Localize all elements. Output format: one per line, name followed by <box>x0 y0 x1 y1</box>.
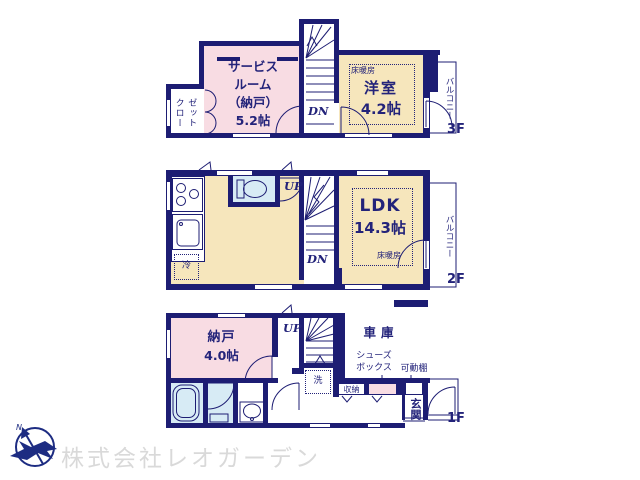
floorplan-page: クロー ゼット サービス ルーム （納戸） 5.2帖 床暖房 洋室 4.2帖 D… <box>0 0 640 480</box>
window-symbol <box>217 170 252 176</box>
wall <box>334 268 342 284</box>
western-room-name: 洋室 <box>339 78 423 99</box>
storage-room-name: 納戸 <box>171 329 272 347</box>
window-symbol <box>423 98 430 128</box>
sink-box <box>172 214 203 250</box>
wall-stub <box>292 368 304 374</box>
window-symbol <box>310 423 330 428</box>
window-symbol <box>218 313 245 318</box>
stairs-up-label-2f: UP <box>284 178 303 194</box>
floor2-label: 2F <box>447 271 465 289</box>
service-room-label: サービス ルーム （納戸） 5.2帖 <box>204 58 302 131</box>
floor3-label: 3F <box>447 121 465 139</box>
wall-stub <box>365 383 368 395</box>
wall <box>423 170 430 290</box>
room-toilet-2f <box>233 176 275 202</box>
wall <box>228 202 280 207</box>
closet-label-1f: 収納 <box>338 384 365 395</box>
wall <box>199 41 304 46</box>
entrance-label: 玄関 <box>405 395 423 423</box>
window-leaf-mark-1f <box>282 305 292 313</box>
shoebox-box <box>368 383 397 395</box>
company-name: 株式会社レオガーデン <box>61 443 321 475</box>
storage-room-size: 4.0帖 <box>171 347 272 365</box>
window-symbol <box>233 133 270 138</box>
window-symbol <box>345 284 382 290</box>
stairs-dn-label-3f: DN <box>308 103 328 119</box>
wall <box>233 383 238 423</box>
garage-wall-segment <box>394 300 428 307</box>
vanity-icon <box>240 402 264 422</box>
room-washroom-1f <box>208 383 233 423</box>
open-chevron-icons <box>342 396 382 402</box>
ldk-size: 14.3帖 <box>337 218 423 239</box>
washer-label: 洗 <box>305 375 331 388</box>
stairwell-2f <box>304 176 334 284</box>
window-symbol <box>166 182 171 210</box>
shoebox-label: シューズ ボックス <box>350 351 398 374</box>
window-symbol <box>368 423 380 428</box>
window-leaf-marks-2f <box>199 162 292 170</box>
window-symbol <box>255 284 292 290</box>
fridge-label: 冷 <box>174 260 199 273</box>
window-symbol <box>423 241 430 269</box>
heating-label-3f: 床暖房 <box>351 65 375 76</box>
closet-label-3f: クロー ゼット <box>172 90 204 136</box>
room-bath-1f <box>171 383 203 423</box>
wall <box>275 176 280 207</box>
window-symbol <box>357 170 388 176</box>
wall <box>166 313 345 318</box>
wall <box>166 284 430 290</box>
stove-box <box>172 178 203 212</box>
stairs-1f-icon <box>306 318 334 364</box>
floor1-label: 1F <box>447 410 465 428</box>
wall <box>166 378 278 383</box>
wall <box>263 383 268 423</box>
stairs-dn-label-2f: DN <box>307 251 327 267</box>
wall <box>203 383 208 423</box>
shelf-box <box>405 382 423 395</box>
wall <box>166 170 430 176</box>
window-symbol <box>166 100 171 126</box>
logo-north-letter: N <box>16 422 22 433</box>
wall <box>272 318 278 357</box>
window-symbol <box>345 133 392 138</box>
wall <box>166 84 204 89</box>
wall <box>337 378 430 383</box>
heating-label-2f: 床暖房 <box>377 250 401 261</box>
garage-label: 車庫 <box>358 324 404 342</box>
balcony-label-2f: バルコニー <box>432 200 454 272</box>
wall <box>423 380 428 420</box>
wall <box>299 363 339 368</box>
ldk-name: LDK <box>337 195 423 219</box>
wall <box>299 19 339 24</box>
shelf-label: 可動棚 <box>398 363 430 376</box>
western-room-size: 4.2帖 <box>339 100 423 120</box>
stairs-up-label-1f: UP <box>283 320 302 336</box>
